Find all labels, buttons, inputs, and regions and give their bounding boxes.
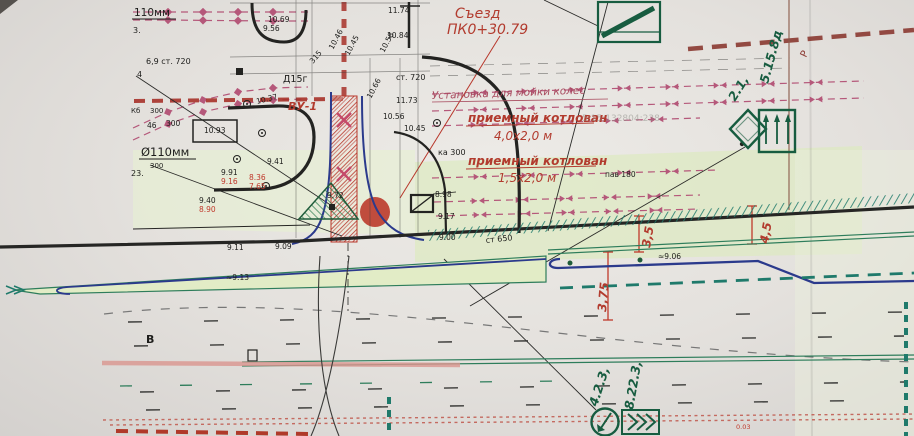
ref-n4: 4 (137, 70, 142, 79)
median-strips (6, 256, 914, 294)
pit2-size: 1,5х2,0 м (498, 171, 556, 185)
elevation-label: 11.74 (388, 6, 410, 15)
station-720a: 6,9 ст. 720 (146, 57, 191, 66)
elevation-label: 10.37 (255, 92, 278, 106)
ref-n300c: 300 (150, 162, 163, 170)
site-plan-photo: Съезд ПК0+30.79 Установка для мойки коле… (0, 0, 914, 436)
exit-callout-line2: ПК0+30.79 (447, 22, 528, 38)
ref-mark-003: 0.03 (736, 423, 750, 431)
sign-number-label: 4.2.3, (585, 365, 612, 409)
direction-sign-icon (592, 409, 619, 436)
sign-number-label: 2.1, (725, 73, 752, 104)
elevation-label: 9.09 (275, 242, 292, 251)
ref-n300b: 300 (166, 119, 181, 128)
temporary-sign-icon (598, 2, 660, 42)
width-dimension-label: 3,75 (595, 282, 612, 313)
elevation-label: 9.40 (199, 196, 216, 205)
elevation-label: 9.56 (263, 24, 280, 33)
design-elevation-label: 7.65 (249, 182, 266, 191)
pit1-size: 4,0х2,0 м (494, 129, 552, 143)
priority-road-sign-icon (730, 110, 766, 148)
elevation-label: 10.93 (204, 126, 226, 135)
pipe-label-top: 110мм (134, 7, 170, 19)
ref-vu1: ВУ-1 (288, 100, 317, 113)
design-elevation-label: 9.16 (221, 177, 238, 186)
elevation-label: 10.69 (268, 15, 290, 24)
ref-d15: Д15г (283, 74, 308, 85)
elevation-label: 10.45 (404, 124, 426, 133)
ref-n23: 23. (131, 169, 144, 178)
ref-letter-b: В (146, 333, 154, 346)
pipe-label-mid: Ø110мм (141, 145, 189, 159)
elevation-label: 10.56 (383, 112, 405, 121)
elevation-label: ≈9.06 (658, 252, 681, 261)
station-ka300: ка 300 (438, 148, 466, 157)
design-elevation-label: 8.90 (199, 205, 216, 214)
ref-n300a: 300 (150, 107, 163, 115)
elevation-label: 11.73 (396, 96, 418, 105)
elevation-label: 9.11 (227, 243, 244, 252)
ref-n3: 3. (133, 26, 141, 35)
ref-n315: 315 (308, 48, 324, 65)
sign-number-label: 8.22.3, (621, 360, 644, 411)
station-720b: ст. 720 (396, 73, 425, 82)
elevation-label: ≈9.13 (226, 273, 249, 282)
cadastral-number: 5:15:132804:238 (582, 114, 660, 124)
exit-callout-line1: Съезд (455, 6, 500, 22)
chevron-plate-sign-icon (622, 410, 659, 434)
elevation-label: 9.72 (327, 191, 344, 200)
elevation-label: 10.58 (378, 31, 396, 54)
ref-n46: 46 (147, 121, 157, 130)
elevation-label: 9.91 (221, 168, 238, 177)
sign-number-label: 5.15.8д (756, 28, 785, 84)
station-pav180: пав 180 (605, 170, 636, 179)
site-plan-drawing: Съезд ПК0+30.79 Установка для мойки коле… (0, 0, 914, 436)
elevation-label: 10.66 (365, 77, 383, 100)
elevation-label: 9.17 (438, 212, 455, 221)
ref-kb: Кб (131, 107, 140, 115)
elevation-label: 9.41 (267, 157, 284, 166)
design-elevation-label: 8.36 (249, 173, 266, 182)
elevation-label: 8.98 (435, 190, 452, 199)
elevation-label: 9.00 (439, 233, 456, 242)
